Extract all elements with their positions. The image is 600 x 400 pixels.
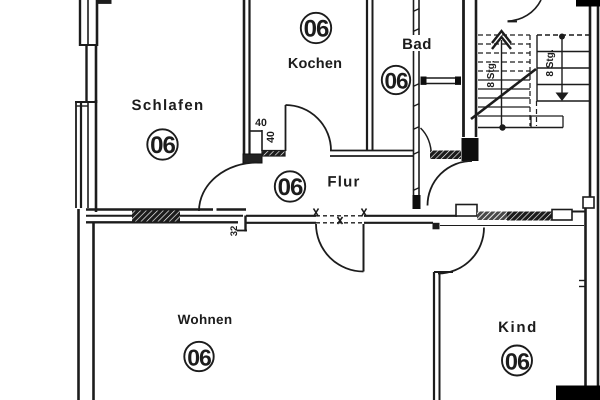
svg-text:06: 06 <box>505 349 530 375</box>
svg-text:40: 40 <box>265 131 277 143</box>
svg-text:06: 06 <box>278 174 303 201</box>
svg-text:06: 06 <box>384 69 408 94</box>
svg-text:Bad: Bad <box>402 36 432 53</box>
svg-text:Schlafen: Schlafen <box>132 97 205 114</box>
svg-text:Kochen: Kochen <box>288 56 342 72</box>
svg-text:8 Stg.: 8 Stg. <box>545 49 556 76</box>
svg-text:06: 06 <box>150 132 175 159</box>
svg-text:40: 40 <box>255 117 267 129</box>
svg-text:Kind: Kind <box>498 319 538 336</box>
svg-text:8 Stg.: 8 Stg. <box>486 60 497 87</box>
svg-text:06: 06 <box>304 16 329 43</box>
svg-text:06: 06 <box>187 345 211 371</box>
svg-text:Flur: Flur <box>327 174 360 191</box>
svg-text:Wohnen: Wohnen <box>178 312 233 327</box>
